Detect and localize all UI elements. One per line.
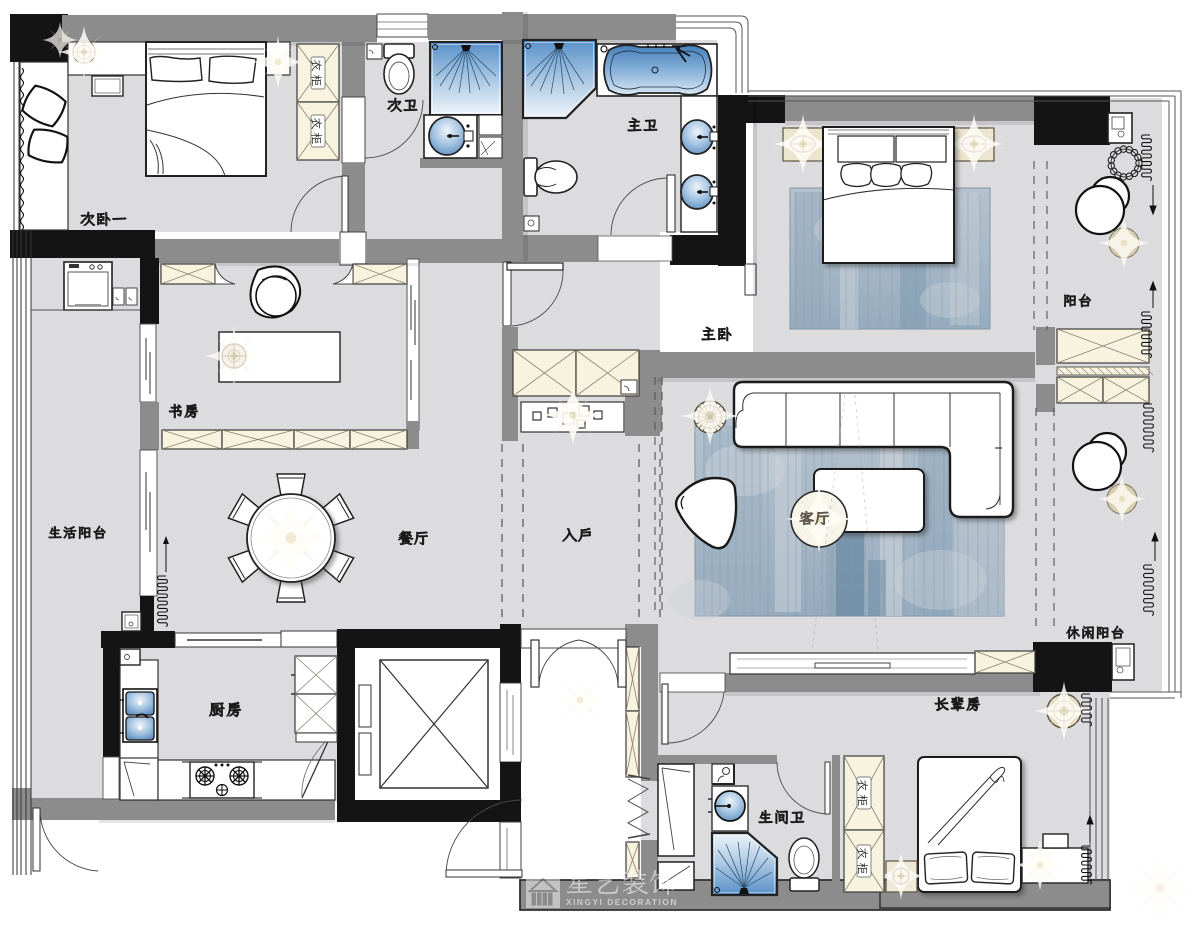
- svg-text:XINGYI DECORATION: XINGYI DECORATION: [566, 897, 678, 907]
